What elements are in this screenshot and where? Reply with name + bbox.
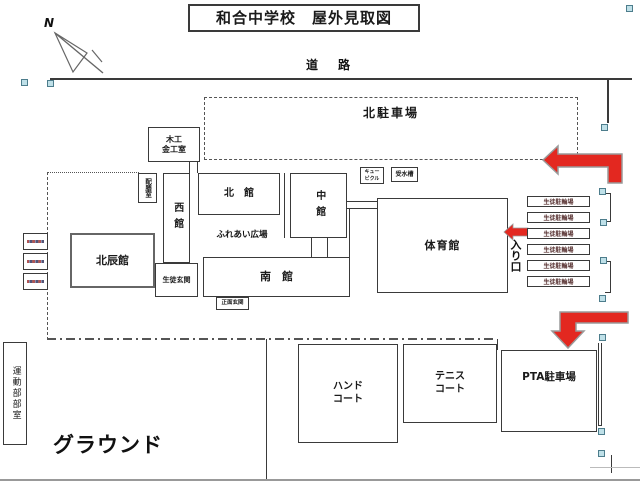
drawing-handle: [47, 80, 54, 87]
bike-parking-label: 生徒駐輪場: [543, 197, 573, 206]
entrance-label: 入り口: [507, 239, 523, 281]
bike-parking-label: 生徒駐輪場: [543, 229, 573, 238]
building-woodwork-room: 木工 金工室: [148, 127, 200, 162]
compass: N: [36, 16, 108, 78]
building-south-hall: 南 館: [203, 257, 350, 297]
area-label: ハンド コート: [333, 381, 363, 406]
map-title: 和合中学校 屋外見取図: [216, 9, 392, 28]
fence-segment: [611, 455, 612, 473]
building-west-hall: 西館: [163, 173, 190, 263]
site-map: 和合中学校 屋外見取図 N 道 路 北駐車場 木工 金工室 配膳室 西館: [0, 0, 640, 487]
boundary-dotted-line: [47, 172, 139, 173]
bike-parking-box: 生徒駐輪場: [527, 212, 590, 223]
drawing-handle: [601, 124, 608, 131]
building-label: キュー ビクル: [364, 169, 379, 182]
building-north-hall: 北 館: [198, 173, 280, 215]
compass-north-label: N: [44, 16, 54, 30]
shed-tiny-text: [27, 280, 44, 283]
map-title-box: 和合中学校 屋外見取図: [188, 4, 420, 32]
bike-parking-label: 生徒駐輪場: [543, 277, 573, 286]
shed-box: [23, 253, 48, 270]
shed-box: [23, 233, 48, 250]
building-label: 木工 金工室: [162, 135, 186, 155]
fureai-plaza-label: ふれあい広場: [207, 228, 277, 240]
fence-segment: [605, 193, 611, 222]
bike-parking-box: 生徒駐輪場: [527, 260, 590, 271]
building-sports-club-rooms: 運動部部室: [3, 342, 27, 445]
area-label: テニス コート: [435, 371, 465, 396]
building-label: 受水槽: [395, 171, 413, 179]
pta-driveway-lines: [598, 343, 602, 426]
building-student-entrance: 生徒玄関: [155, 263, 198, 297]
building-label: 中館: [312, 190, 325, 222]
corridor-line: [349, 208, 350, 257]
bike-parking-box: 生徒駐輪場: [527, 228, 590, 239]
entrance-arrow-bottom-icon: [550, 308, 635, 353]
hand-court-area: ハンド コート: [298, 344, 398, 443]
ground-label: グラウンド: [53, 429, 163, 459]
bike-parking-label: 生徒駐輪場: [543, 245, 573, 254]
corridor-line: [189, 162, 190, 173]
building-label: 運動部部室: [9, 366, 20, 421]
tennis-court-area: テニス コート: [403, 344, 497, 423]
building-main-entrance: 正面玄関: [216, 297, 249, 310]
bottom-page-line: [0, 479, 640, 481]
shed-tiny-text: [27, 240, 44, 243]
drawing-handle: [598, 450, 605, 457]
boundary-stub-line: [497, 339, 498, 350]
building-label: 西館: [170, 202, 183, 234]
bike-parking-label: 生徒駐輪場: [543, 213, 573, 222]
bike-parking-label: 生徒駐輪場: [543, 261, 573, 270]
bike-parking-box: 生徒駐輪場: [527, 196, 590, 207]
boundary-dashdot-line: [47, 338, 493, 340]
north-parking-area: 北駐車場: [204, 97, 578, 160]
building-water-tank: 受水槽: [391, 167, 418, 182]
drawing-handle: [21, 79, 28, 86]
north-parking-label: 北駐車場: [363, 106, 419, 121]
road-side-line: [607, 78, 609, 123]
corridor-line: [197, 162, 198, 173]
building-label: 配膳室: [143, 178, 151, 198]
pta-parking-area: PTA駐車場: [501, 350, 597, 432]
building-label: 体育館: [425, 239, 461, 253]
drawing-handle: [600, 257, 607, 264]
building-label: 生徒玄関: [163, 276, 191, 285]
building-gymnasium: 体育館: [377, 198, 508, 293]
driveway-line: [266, 339, 267, 480]
corridor-line: [284, 173, 285, 238]
drawing-handle: [599, 188, 606, 195]
building-cubicle: キュー ビクル: [360, 167, 384, 184]
fence-segment: [605, 261, 611, 293]
shed-tiny-text: [27, 260, 44, 263]
drawing-handle: [599, 295, 606, 302]
corridor-line: [347, 208, 377, 209]
bike-parking-box: 生徒駐輪場: [527, 244, 590, 255]
drawing-handle: [598, 428, 605, 435]
building-label: 北辰館: [96, 254, 129, 268]
building-label: 南 館: [260, 270, 293, 284]
shed-box: [23, 273, 48, 290]
area-label: PTA駐車場: [522, 371, 576, 384]
drawing-handle: [626, 5, 633, 12]
road-label: 道 路: [240, 56, 420, 73]
drawing-handle: [599, 334, 606, 341]
right-page-line: [590, 467, 640, 468]
corridor-line: [327, 238, 328, 257]
bike-parking-box: 生徒駐輪場: [527, 276, 590, 287]
corridor-line: [311, 238, 312, 257]
entrance-arrow-top-icon: [540, 143, 635, 188]
drawing-handle: [600, 219, 607, 226]
road-line: [50, 78, 632, 80]
corridor-line: [347, 201, 377, 202]
building-hokushin-hall: 北辰館: [70, 233, 155, 288]
building-label: 北 館: [224, 188, 254, 201]
building-middle-hall: 中館: [290, 173, 347, 238]
building-serving-room: 配膳室: [138, 173, 157, 203]
building-label: 正面玄関: [221, 300, 243, 307]
